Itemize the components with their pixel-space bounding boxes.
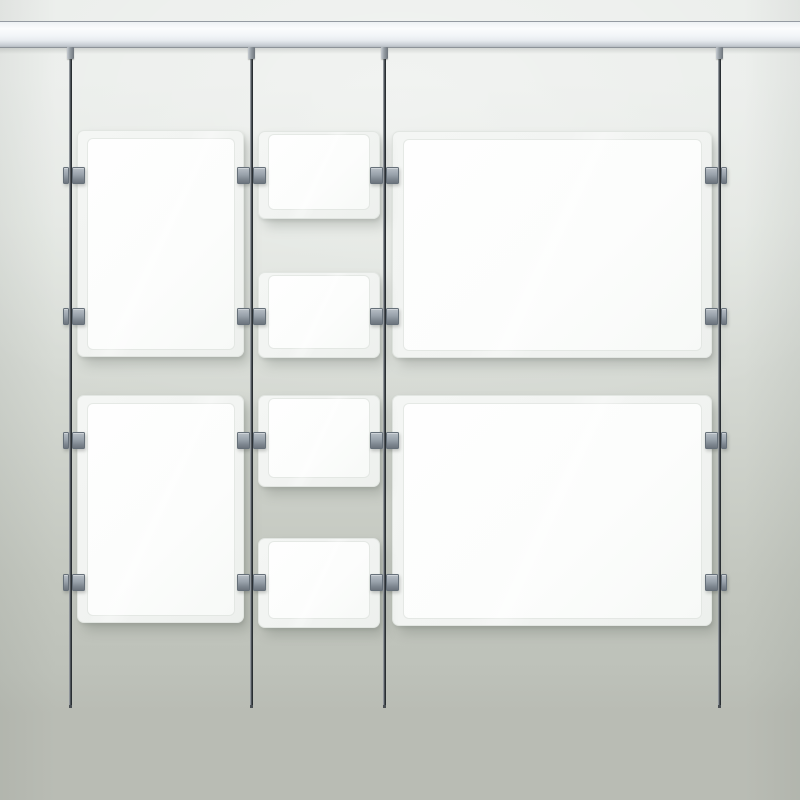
clamp-block-right [253,432,266,449]
clamp-block-left [370,574,383,591]
clamp-block-left [237,574,250,591]
clamp-block-right [721,167,727,184]
panel-front-sheet [269,542,369,618]
suspension-cable [718,47,721,708]
poster-panel-right-bottom [392,395,712,626]
clamp-block-left [370,167,383,184]
clamp-block-left [705,432,718,449]
poster-panel-middle-1 [258,131,380,219]
panel-front-sheet [269,399,369,477]
clamp-block-right [253,574,266,591]
clamp-block-right [253,308,266,325]
clamp-block-right [386,308,399,325]
clamp-block-right [721,574,727,591]
cable-top-gripper [67,47,74,59]
ceiling-rail [0,21,800,48]
cable-end-cap [383,705,386,708]
poster-panel-middle-2 [258,272,380,358]
clamp-block-right [253,167,266,184]
panel-front-sheet [404,140,701,350]
poster-panel-left-top [77,130,244,357]
poster-panel-right-top [392,131,712,358]
panel-front-sheet [88,139,234,349]
clamp-block-left [237,308,250,325]
poster-panel-left-bottom [77,395,244,623]
cable-top-gripper [381,47,388,59]
clamp-block-left [237,167,250,184]
clamp-block-right [72,308,85,325]
poster-panel-middle-3 [258,395,380,487]
poster-panel-middle-4 [258,538,380,628]
scene [0,0,800,800]
clamp-block-right [386,432,399,449]
clamp-block-left [705,574,718,591]
rail-shadow [0,48,800,54]
clamp-block-right [386,167,399,184]
clamp-block-left [370,432,383,449]
cable-end-cap [718,705,721,708]
suspension-cable [69,47,72,708]
clamp-block-right [72,574,85,591]
clamp-block-right [386,574,399,591]
clamp-block-left [370,308,383,325]
clamp-block-right [72,432,85,449]
panel-front-sheet [269,135,369,209]
clamp-block-left [237,432,250,449]
clamp-block-right [721,308,727,325]
cable-top-gripper [248,47,255,59]
cable-top-gripper [716,47,723,59]
suspension-cable [250,47,253,708]
panel-front-sheet [404,404,701,618]
cable-end-cap [69,705,72,708]
clamp-block-left [705,167,718,184]
cable-end-cap [250,705,253,708]
panel-front-sheet [269,276,369,348]
panel-front-sheet [88,404,234,615]
clamp-block-right [721,432,727,449]
suspension-cable [383,47,386,708]
clamp-block-right [72,167,85,184]
clamp-block-left [705,308,718,325]
